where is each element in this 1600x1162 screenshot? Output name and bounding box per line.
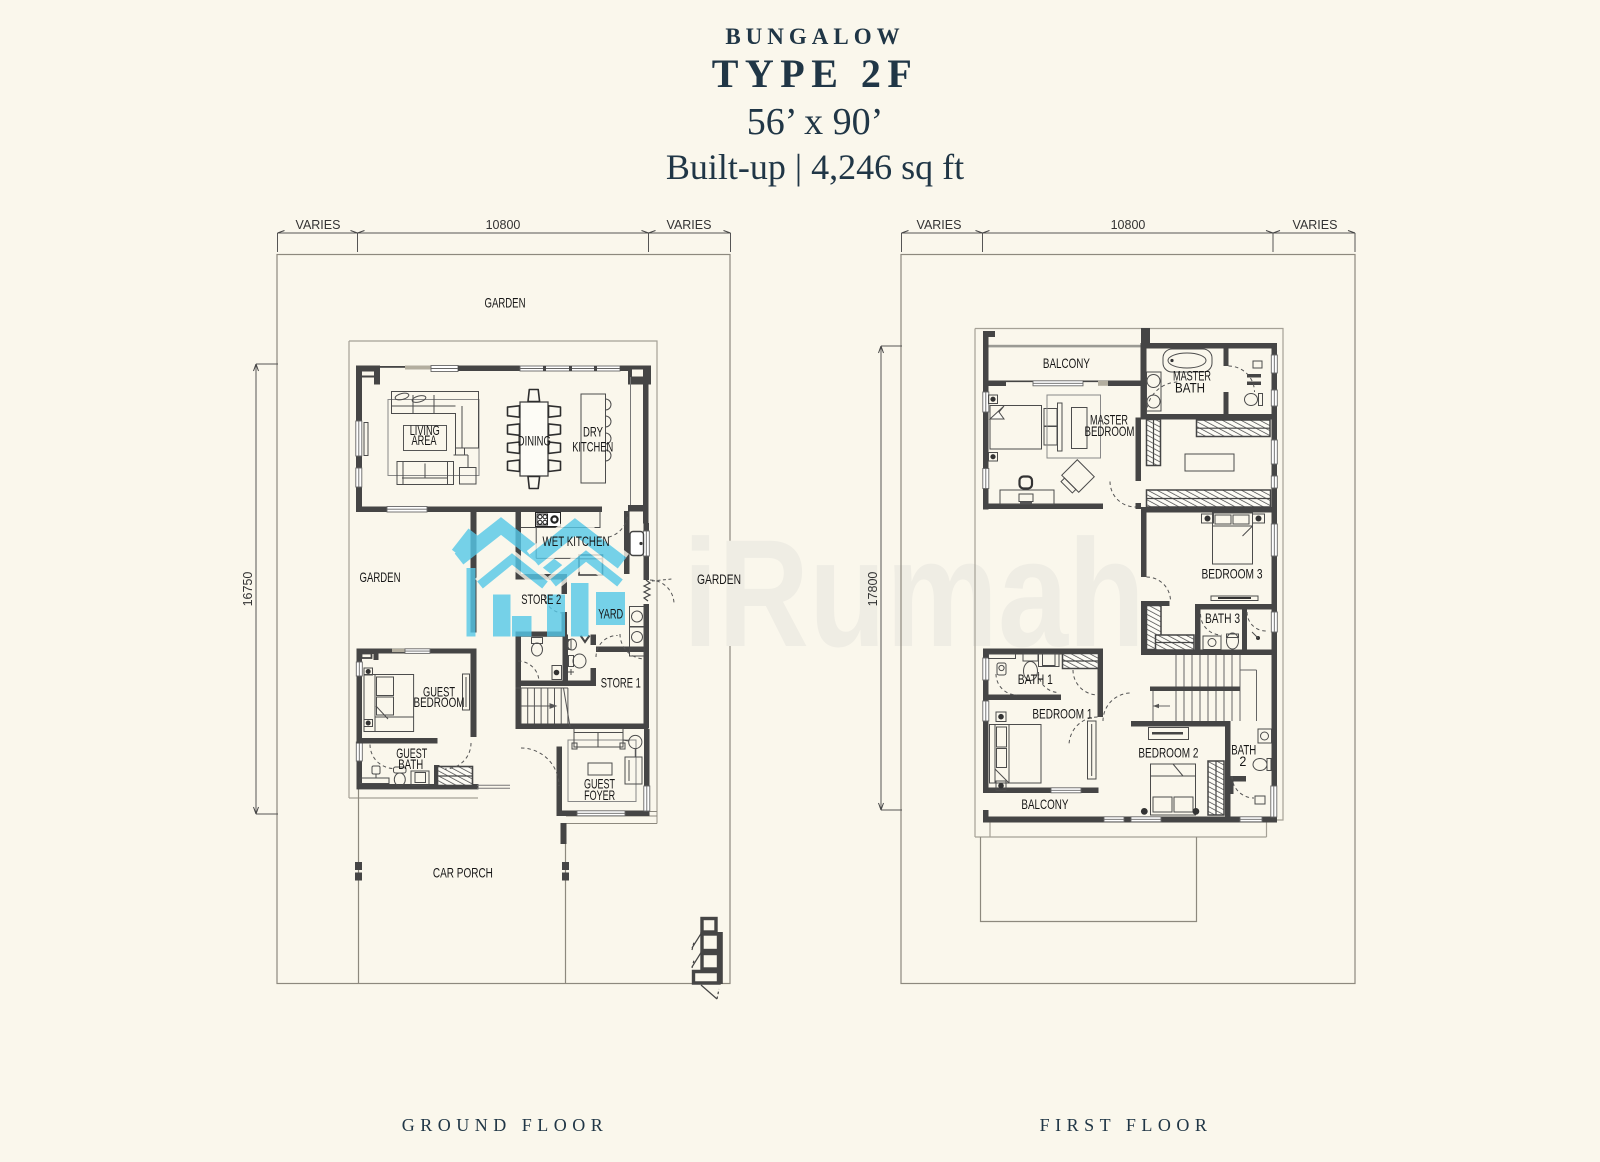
svg-text:VARIES: VARIES xyxy=(296,218,341,232)
svg-text:BEDROOM: BEDROOM xyxy=(1085,423,1135,439)
svg-text:DRY: DRY xyxy=(583,423,603,439)
svg-text:DINING: DINING xyxy=(518,433,551,449)
svg-text:WET KITCHEN: WET KITCHEN xyxy=(543,533,610,549)
svg-text:16750: 16750 xyxy=(241,572,255,607)
svg-text:BALCONY: BALCONY xyxy=(1043,355,1090,371)
svg-text:BEDROOM 3: BEDROOM 3 xyxy=(1202,565,1263,581)
svg-text:STORE 1: STORE 1 xyxy=(601,675,641,691)
svg-text:VARIES: VARIES xyxy=(917,218,962,232)
svg-text:BATH: BATH xyxy=(398,756,423,772)
svg-text:KITCHEN: KITCHEN xyxy=(572,438,613,454)
svg-text:YARD: YARD xyxy=(598,606,623,622)
svg-text:2: 2 xyxy=(1239,753,1246,769)
svg-text:BATH 3: BATH 3 xyxy=(1205,610,1240,626)
svg-text:BATH: BATH xyxy=(1175,379,1205,395)
svg-text:BALCONY: BALCONY xyxy=(1021,796,1068,812)
svg-text:17800: 17800 xyxy=(866,572,880,607)
svg-text:10800: 10800 xyxy=(486,218,521,232)
svg-text:FOYER: FOYER xyxy=(584,787,615,803)
svg-text:BEDROOM 2: BEDROOM 2 xyxy=(1138,744,1198,760)
svg-text:VARIES: VARIES xyxy=(1293,218,1338,232)
svg-text:BATH 1: BATH 1 xyxy=(1018,671,1053,687)
svg-text:CAR PORCH: CAR PORCH xyxy=(433,865,493,881)
svg-text:AREA: AREA xyxy=(412,432,437,448)
svg-text:GARDEN: GARDEN xyxy=(360,569,401,585)
svg-text:BEDROOM 1: BEDROOM 1 xyxy=(1032,705,1092,721)
svg-text:VARIES: VARIES xyxy=(667,218,712,232)
svg-text:GARDEN: GARDEN xyxy=(485,295,526,311)
svg-text:STORE 2: STORE 2 xyxy=(521,591,561,607)
svg-text:10800: 10800 xyxy=(1111,218,1146,232)
svg-text:GARDEN: GARDEN xyxy=(697,571,741,587)
svg-text:BEDROOM: BEDROOM xyxy=(414,694,465,710)
